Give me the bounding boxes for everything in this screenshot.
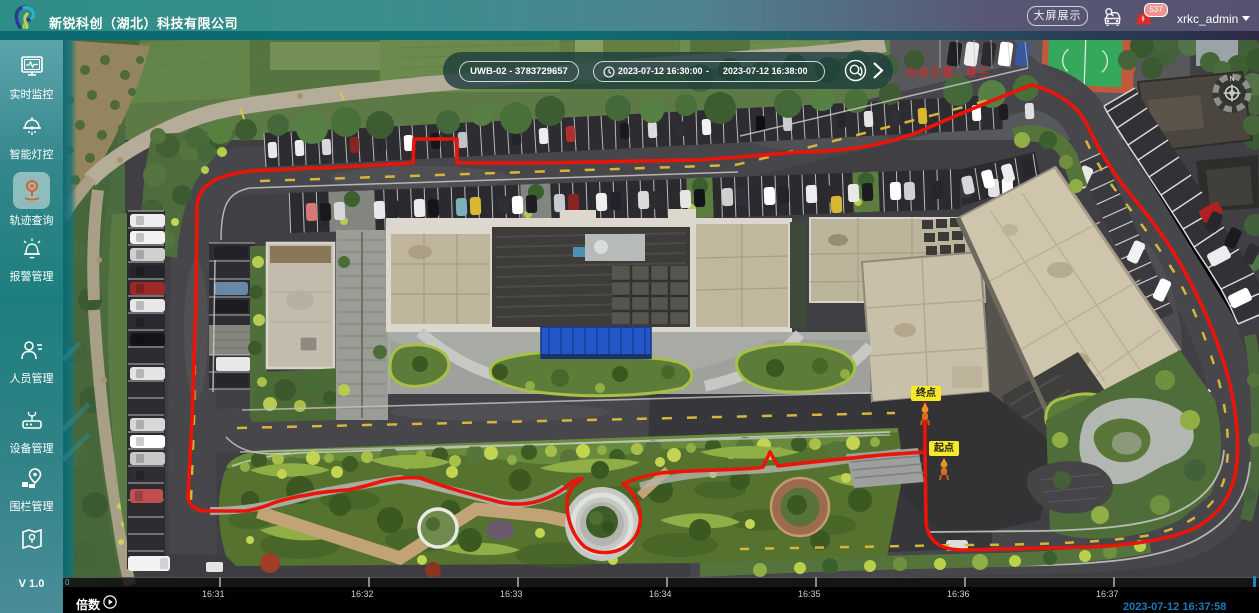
svg-text:N: N (1229, 76, 1234, 83)
